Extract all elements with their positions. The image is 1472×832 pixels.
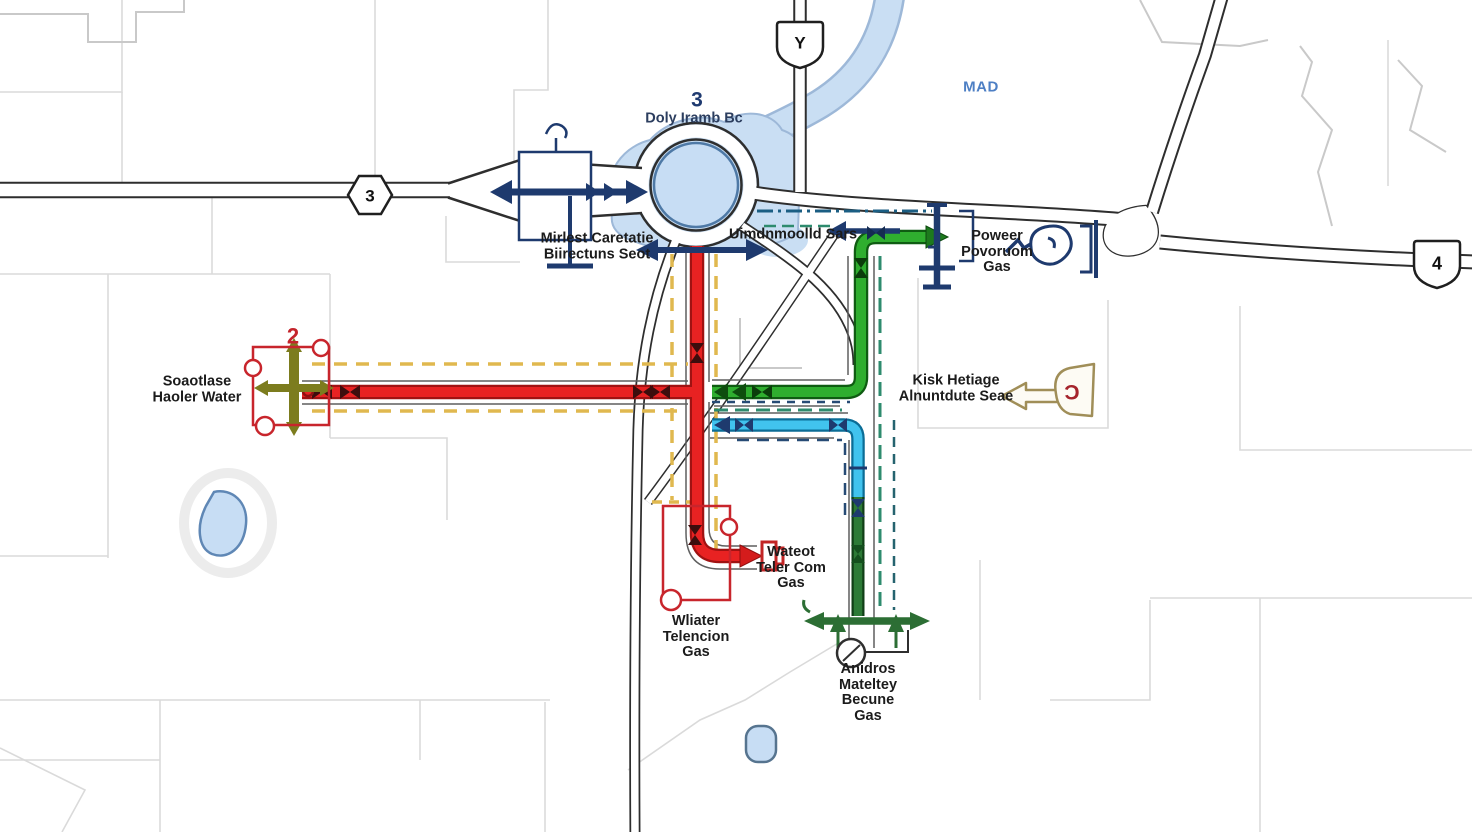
junction-name-label: Doly Iramb Bc xyxy=(645,111,743,127)
dashed-utilities xyxy=(312,211,932,610)
heritage-label: Kisk Hetiage Alnuntdute Seae xyxy=(899,374,1013,405)
pond-west xyxy=(200,491,246,555)
heritage-glyph: Ɔ xyxy=(1064,385,1079,401)
power-label: Poweer Povoruom Gas xyxy=(961,229,1033,276)
heritage-marker-icon xyxy=(1002,364,1094,416)
area-label: MAD xyxy=(963,79,999,95)
water-callout-number: 2 xyxy=(287,328,299,344)
shield-route3-number: 3 xyxy=(365,188,374,204)
telecom-label: Wateot Teler Com Gas xyxy=(756,545,826,592)
station-box-icon xyxy=(519,152,591,240)
sars-label: Uimdnmoolld Sars xyxy=(729,227,857,243)
gas-meter-label: Anidros Mateltey Becune Gas xyxy=(839,662,897,724)
water-left-label: Soaotlase Haoler Water xyxy=(153,375,242,406)
shield-routeY-letter: Y xyxy=(794,35,805,51)
shield-route4-number: 4 xyxy=(1432,256,1442,272)
antenna-icon xyxy=(546,124,566,152)
junction-number: 3 xyxy=(691,92,703,108)
utility-map-page: { "shields": { "route3": "3", "routeY": … xyxy=(0,0,1472,832)
roundabout-pond xyxy=(654,143,738,227)
water-telecom-label: Wliater Telencion Gas xyxy=(663,614,730,661)
west-station-label: Mirlest Caretatie Biirectuns Seot xyxy=(541,232,654,263)
pond-south xyxy=(746,726,776,762)
